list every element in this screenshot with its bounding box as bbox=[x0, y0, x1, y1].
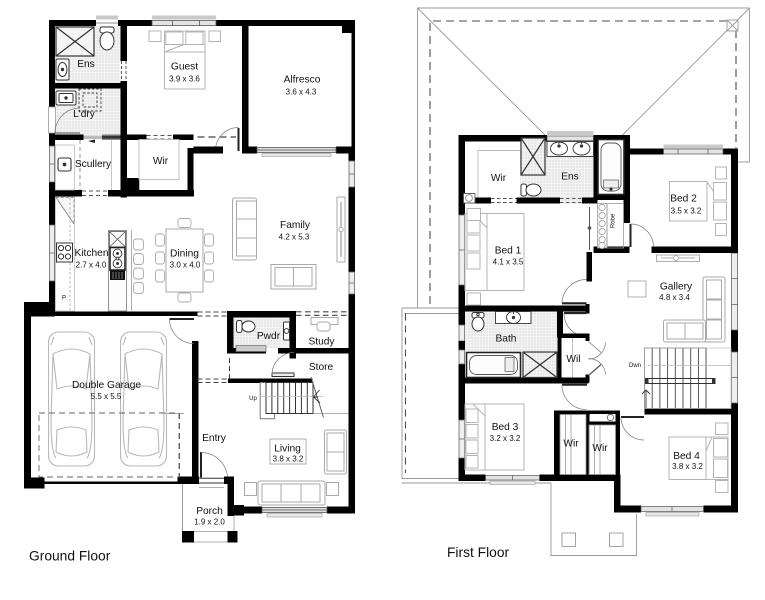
svg-text:P: P bbox=[62, 296, 66, 302]
svg-text:Bath: Bath bbox=[496, 334, 517, 345]
svg-text:Bed 4: Bed 4 bbox=[673, 451, 700, 462]
svg-text:Wir: Wir bbox=[563, 439, 579, 450]
svg-text:Pwdr: Pwdr bbox=[257, 331, 281, 342]
svg-text:Wil: Wil bbox=[566, 354, 580, 365]
svg-text:Robe: Robe bbox=[611, 213, 617, 228]
svg-text:Ens: Ens bbox=[77, 59, 95, 70]
svg-text:Porch: Porch bbox=[196, 506, 223, 517]
svg-text:Ground Floor: Ground Floor bbox=[29, 549, 111, 564]
svg-text:3.8 x 3.2: 3.8 x 3.2 bbox=[273, 455, 304, 464]
svg-text:L'dry: L'dry bbox=[73, 109, 96, 120]
svg-text:2.7 x 4.0: 2.7 x 4.0 bbox=[76, 261, 107, 270]
svg-text:4.8 x 3.4: 4.8 x 3.4 bbox=[659, 293, 690, 302]
svg-text:Wir: Wir bbox=[491, 173, 507, 184]
svg-text:Dining: Dining bbox=[170, 249, 199, 260]
svg-text:Wir: Wir bbox=[153, 156, 169, 167]
svg-text:Up: Up bbox=[249, 396, 257, 402]
svg-text:Bed 3: Bed 3 bbox=[492, 422, 519, 433]
svg-text:Family: Family bbox=[280, 220, 311, 231]
svg-text:Guest: Guest bbox=[171, 62, 198, 73]
svg-text:Gallery: Gallery bbox=[660, 282, 693, 293]
svg-text:3.9 x 3.6: 3.9 x 3.6 bbox=[169, 75, 200, 84]
svg-text:Entry: Entry bbox=[202, 433, 227, 444]
svg-text:Scullery: Scullery bbox=[75, 159, 112, 170]
svg-text:5.5 x 5.5: 5.5 x 5.5 bbox=[91, 392, 122, 401]
svg-text:Alfresco: Alfresco bbox=[284, 75, 321, 86]
svg-text:First Floor: First Floor bbox=[447, 545, 509, 560]
svg-text:Kitchen: Kitchen bbox=[75, 248, 109, 259]
svg-text:Bed 1: Bed 1 bbox=[495, 246, 522, 257]
svg-text:Ens: Ens bbox=[561, 172, 579, 183]
svg-text:3.8 x 3.2: 3.8 x 3.2 bbox=[672, 462, 703, 471]
svg-text:3.0 x 4.0: 3.0 x 4.0 bbox=[170, 261, 201, 270]
svg-text:Wir: Wir bbox=[592, 443, 608, 454]
svg-text:Dwn: Dwn bbox=[629, 363, 641, 369]
svg-text:4.1 x 3.5: 4.1 x 3.5 bbox=[493, 258, 524, 267]
svg-text:3.2 x 3.2: 3.2 x 3.2 bbox=[490, 434, 521, 443]
svg-text:Store: Store bbox=[309, 362, 334, 373]
svg-text:1.9 x 2.0: 1.9 x 2.0 bbox=[194, 518, 225, 527]
svg-text:Bed 2: Bed 2 bbox=[670, 194, 697, 205]
svg-text:4.2 x 5.3: 4.2 x 5.3 bbox=[279, 233, 310, 242]
svg-text:3.5 x 3.2: 3.5 x 3.2 bbox=[671, 207, 702, 216]
svg-text:Living: Living bbox=[274, 444, 301, 455]
svg-text:Study: Study bbox=[308, 337, 335, 348]
svg-text:Double Garage: Double Garage bbox=[72, 380, 141, 391]
svg-text:3.6 x 4.3: 3.6 x 4.3 bbox=[286, 88, 317, 97]
